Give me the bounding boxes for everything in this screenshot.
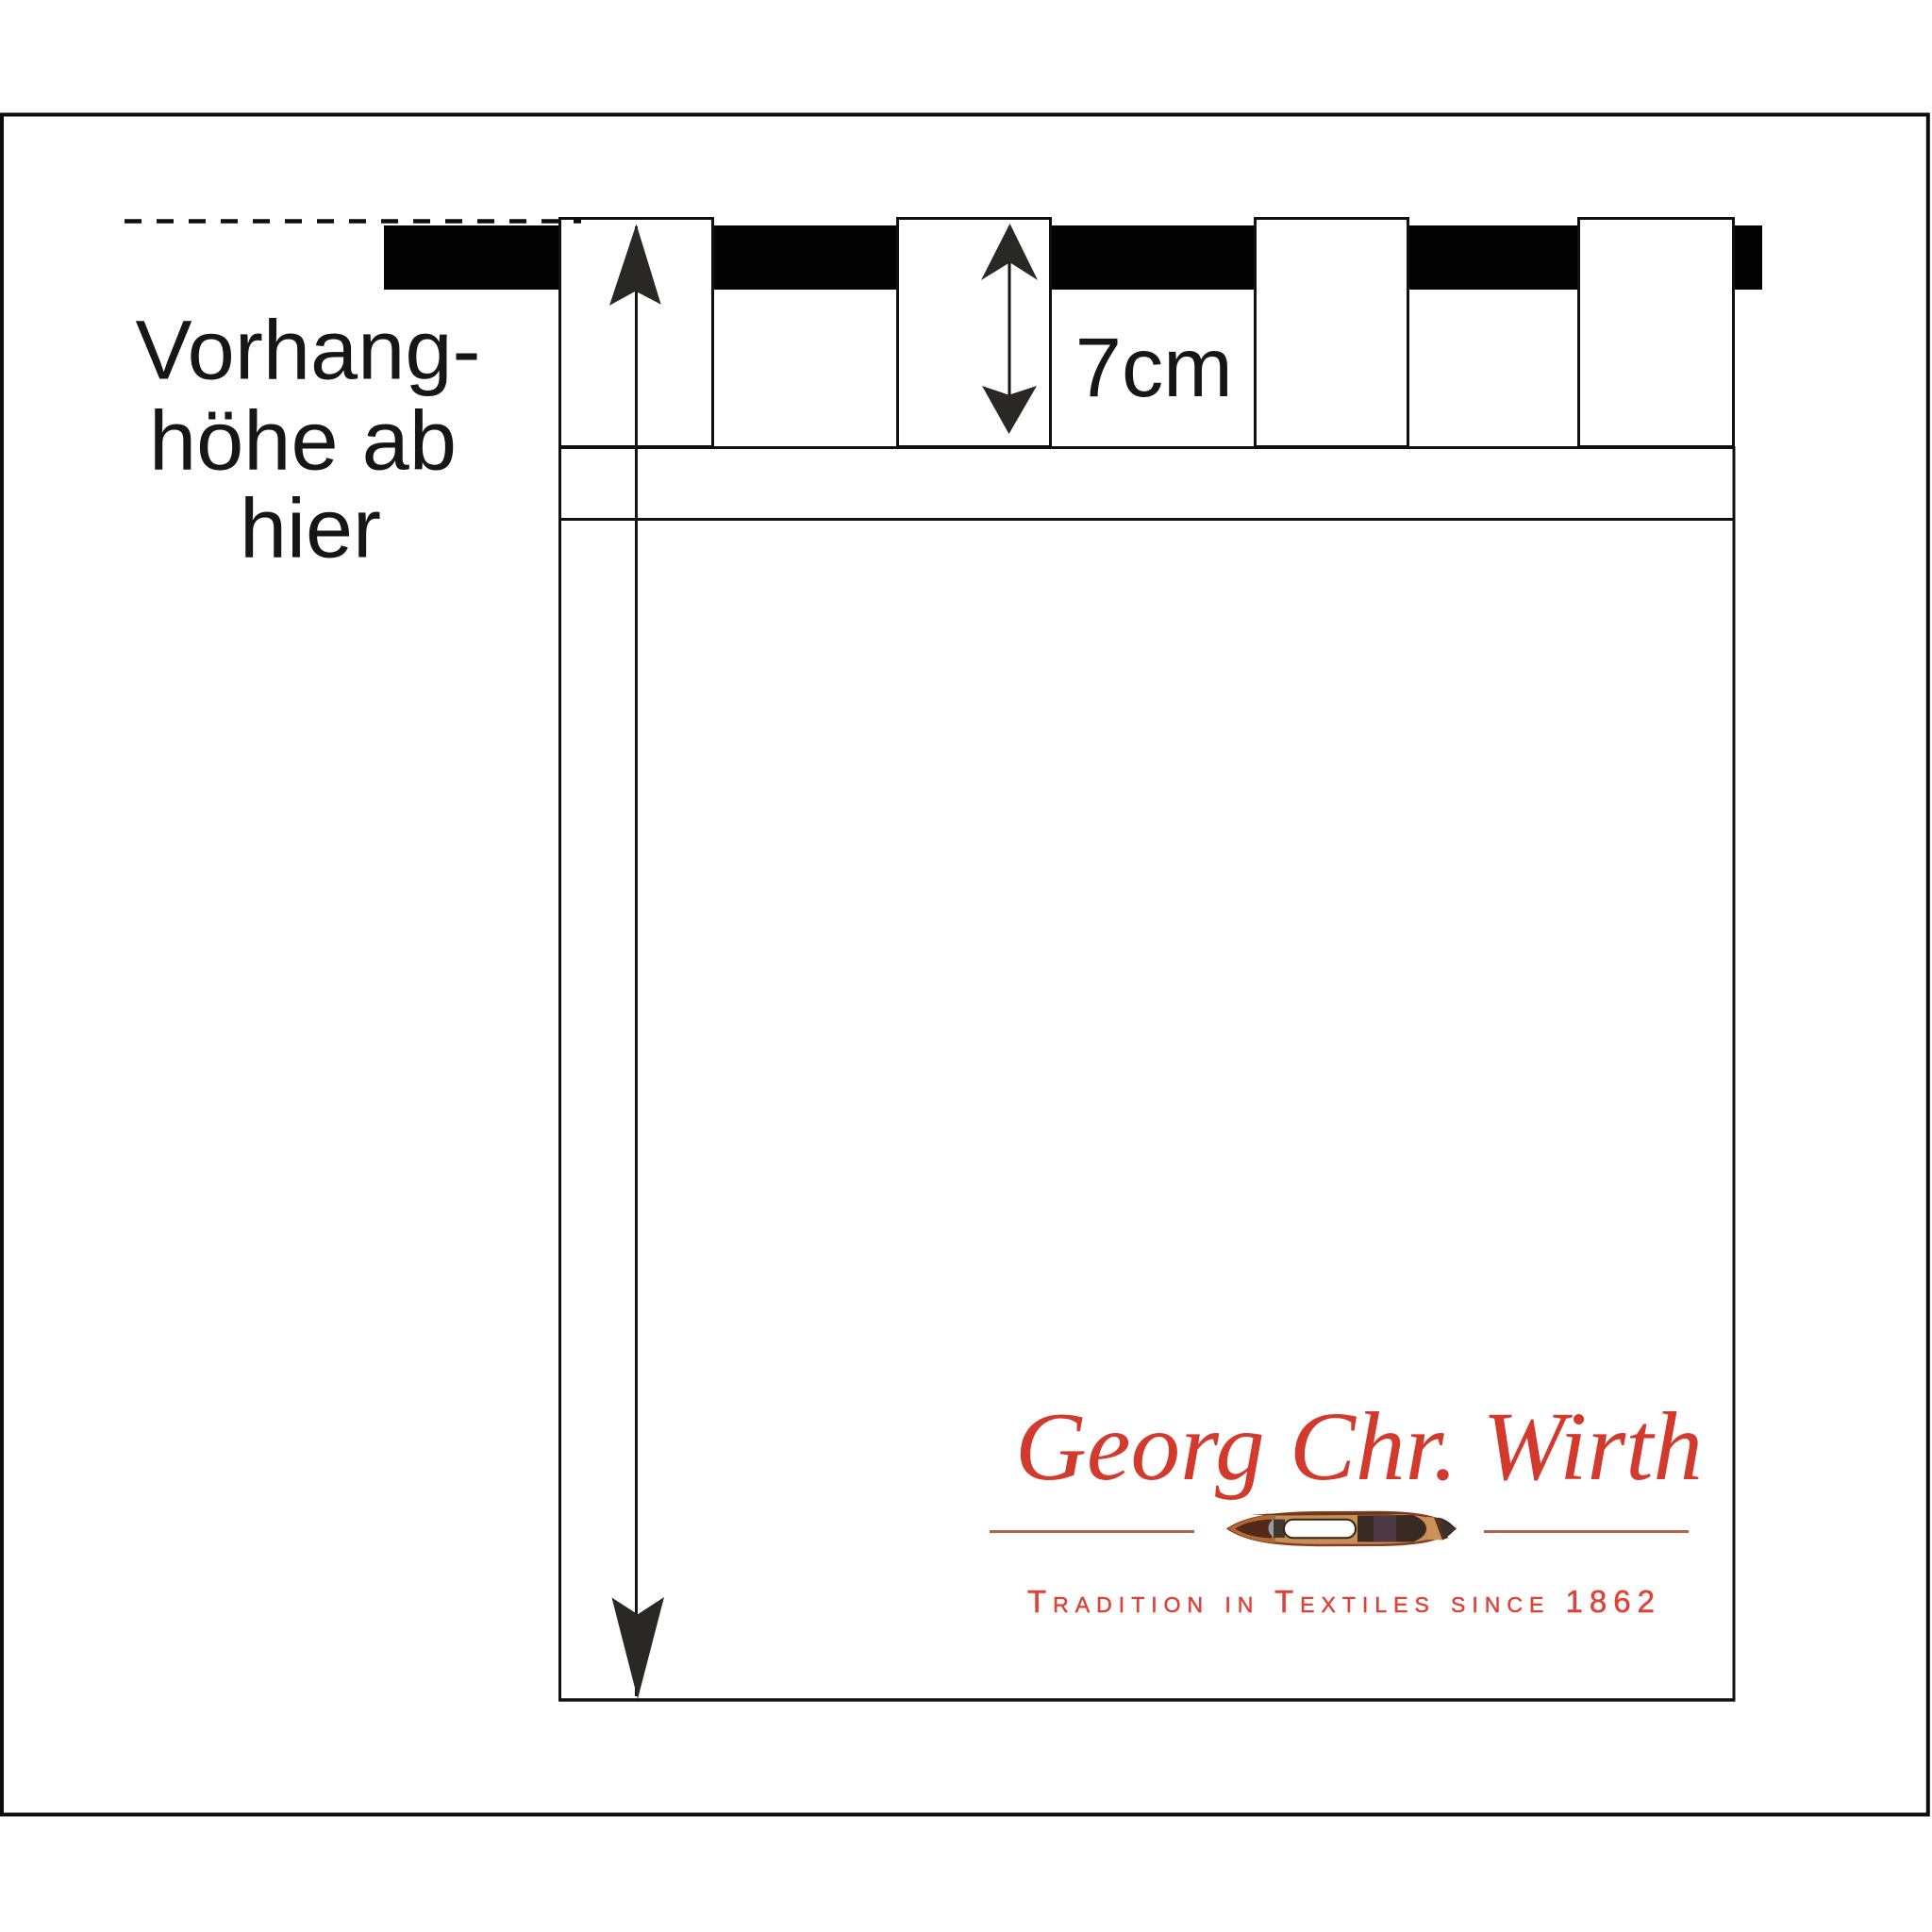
- svg-text:höhe ab: höhe ab: [149, 392, 457, 487]
- svg-text:Georg Chr. Wirth: Georg Chr. Wirth: [1015, 1392, 1703, 1501]
- svg-text:Vorhang-: Vorhang-: [136, 303, 481, 397]
- svg-text:hier: hier: [240, 481, 381, 575]
- svg-text:7cm: 7cm: [1075, 320, 1233, 414]
